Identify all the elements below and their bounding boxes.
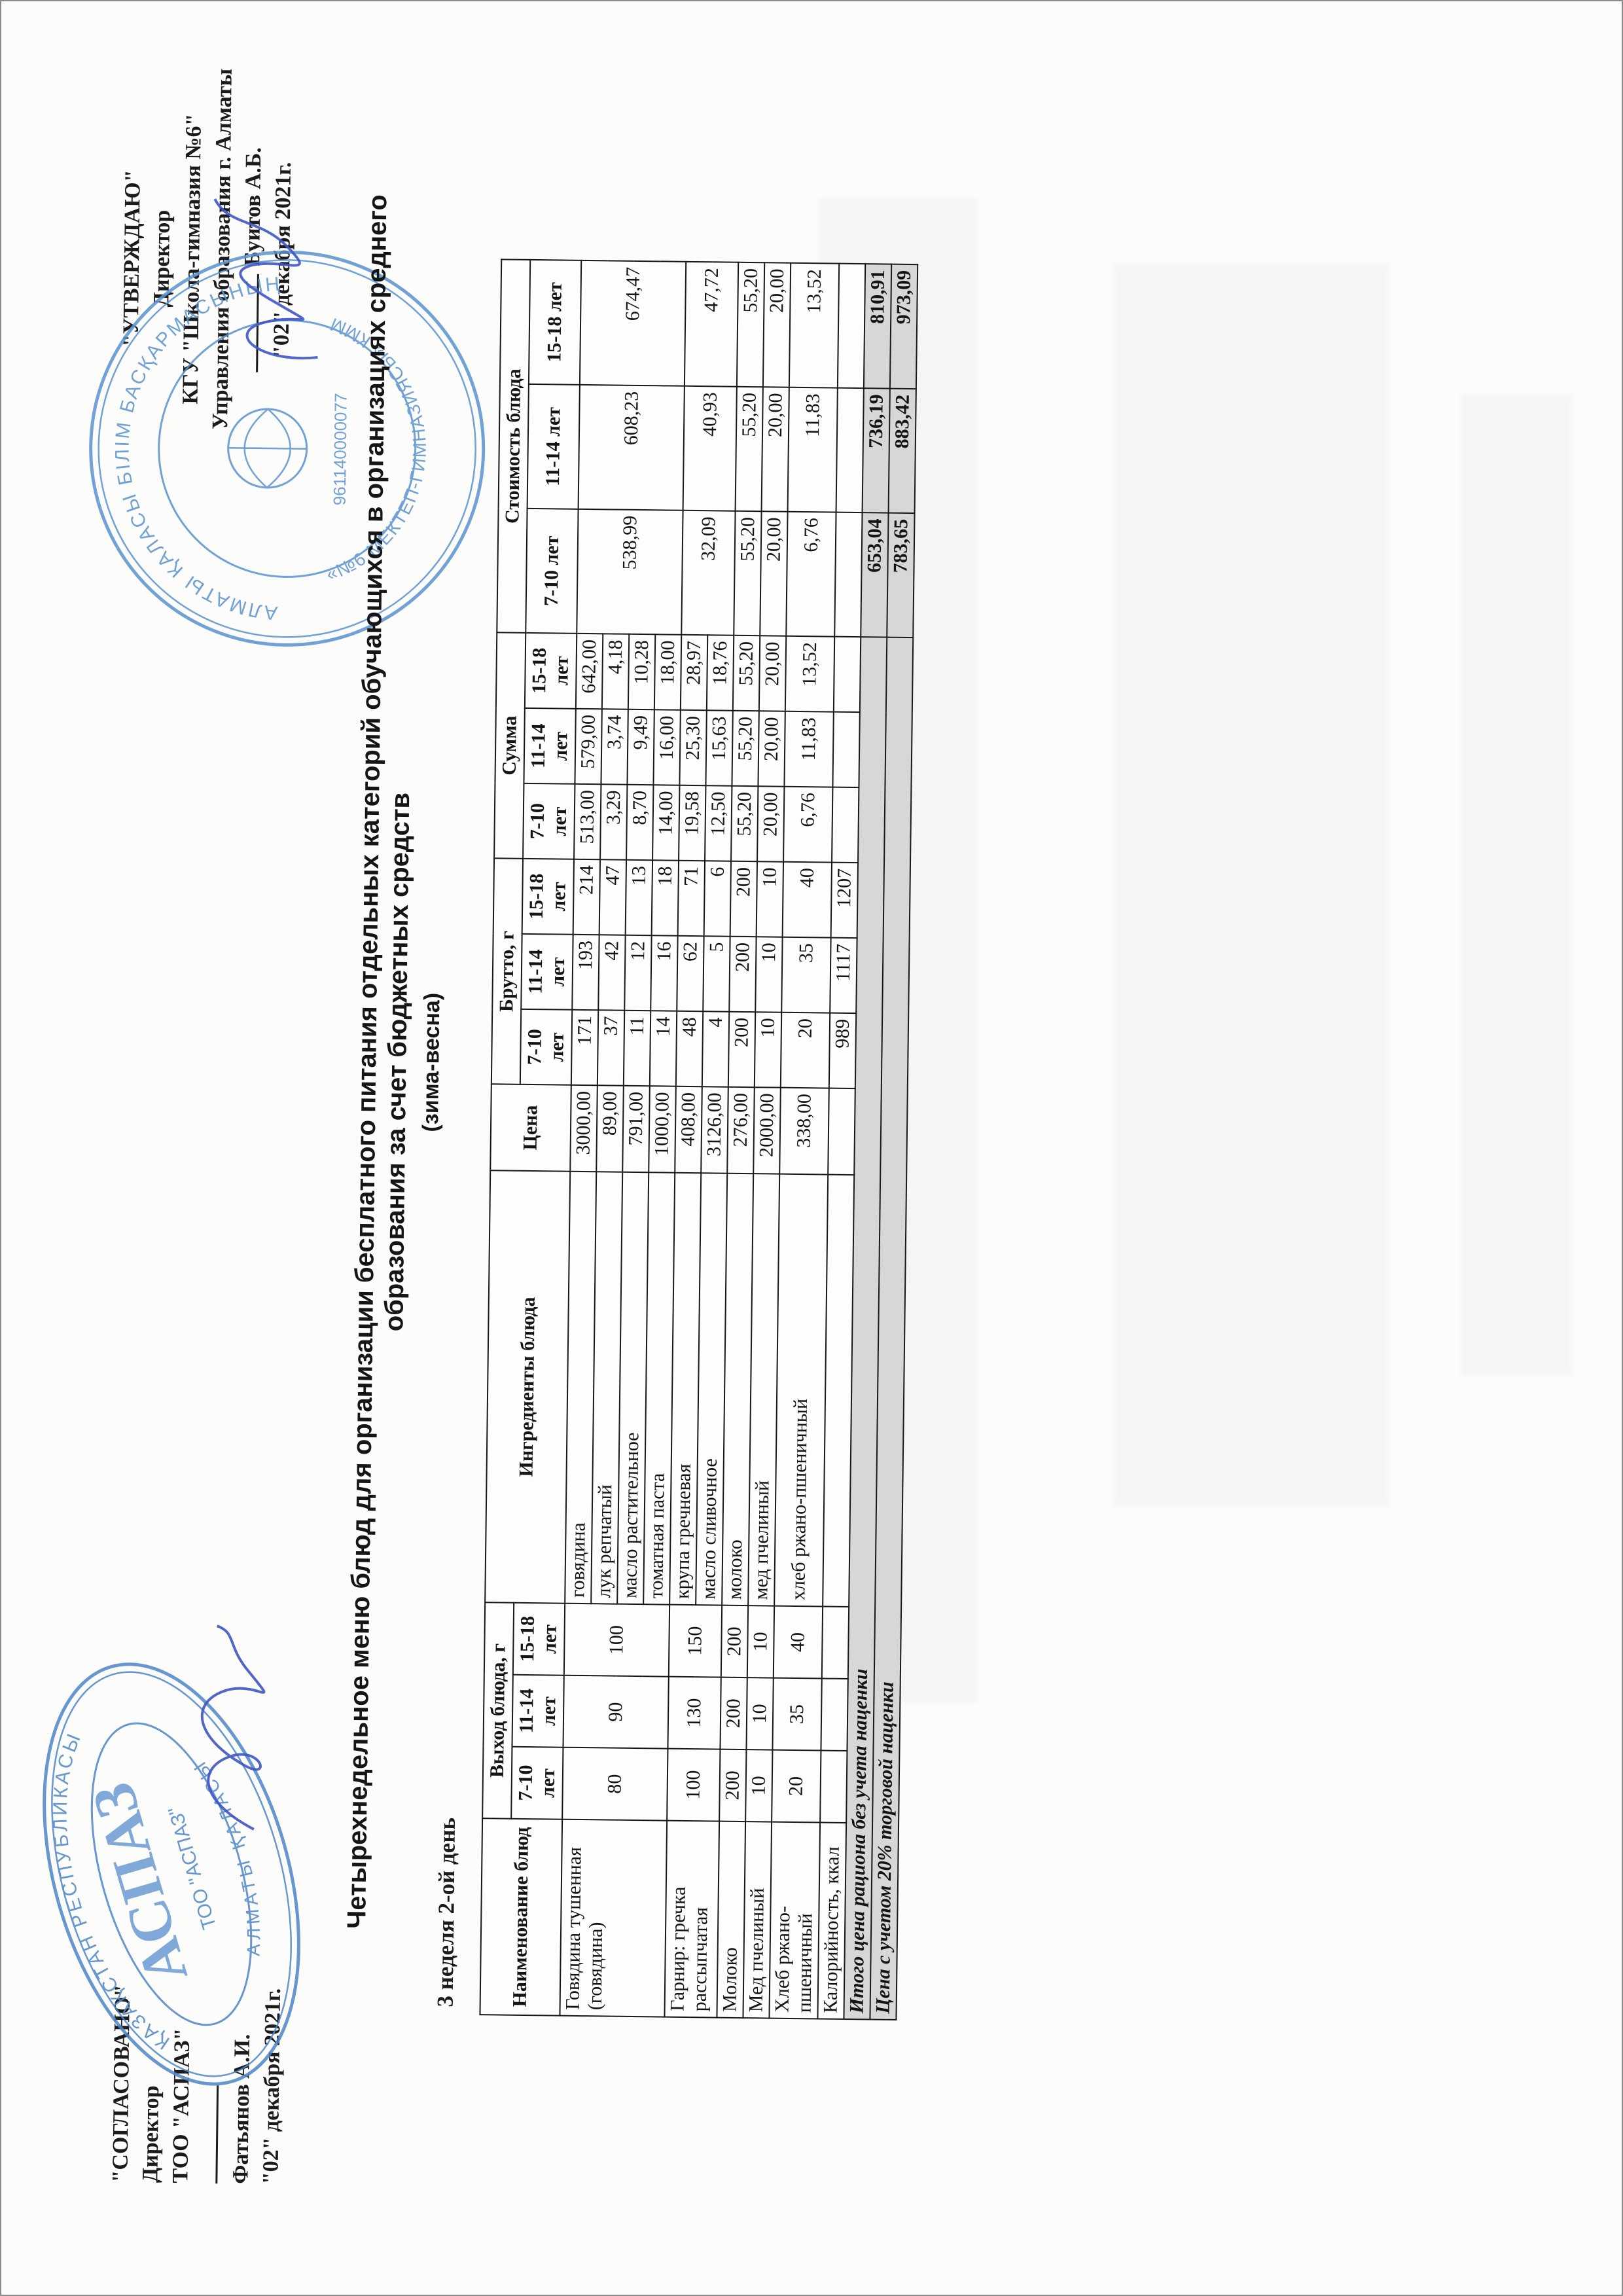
th-age: 15-18 лет	[525, 633, 577, 709]
dish-cost-cell: 674,47	[580, 260, 686, 386]
sum-cell	[834, 637, 861, 712]
signature-left-icon	[175, 1619, 296, 1842]
sum-cell: 11,83	[784, 711, 833, 787]
totals-value-cell: 653,04	[861, 512, 888, 637]
output-cell: 80	[562, 1748, 668, 1821]
gross-cell: 35	[781, 937, 830, 1013]
sum-cell: 3,29	[600, 784, 627, 859]
dish-cost-cell: 608,23	[579, 385, 685, 511]
price-cell	[828, 1088, 855, 1175]
signature-right-icon	[187, 173, 340, 384]
gross-cell: 200	[728, 1012, 755, 1087]
sum-cell: 3,74	[601, 709, 628, 784]
gross-cell: 47	[599, 859, 626, 935]
th-group: Цена	[490, 1084, 571, 1171]
sum-cell: 10,28	[628, 634, 655, 709]
output-cell: 150	[669, 1605, 722, 1677]
output-cell: 40	[774, 1606, 823, 1679]
output-cell: 100	[667, 1749, 720, 1821]
gross-cell: 16	[651, 935, 677, 1011]
gross-cell: 5	[703, 936, 730, 1011]
th-age: 11-14 лет	[521, 934, 573, 1010]
th-age: 7-10 лет	[523, 783, 575, 859]
th-group: Стоимость блюда	[497, 259, 530, 632]
output-cell: 10	[747, 1605, 774, 1677]
th-age: 11-14 лет	[524, 708, 575, 784]
th-group: Ингредиенты блюда	[485, 1170, 570, 1603]
dish-cost-cell: 47,72	[685, 262, 738, 387]
th-group: Выход блюда, г	[482, 1602, 514, 1819]
dish-cost-cell	[838, 264, 865, 388]
gross-cell: 989	[829, 1013, 856, 1088]
gross-cell: 10	[757, 861, 783, 937]
sum-cell: 14,00	[652, 785, 679, 860]
price-cell: 791,00	[622, 1086, 650, 1172]
gross-cell: 4	[702, 1011, 729, 1086]
stamp-right-center-number: 961140000077	[330, 393, 351, 505]
dish-cost-cell: 20,00	[760, 511, 787, 636]
dish-name-cell: Говядина тушенная (говядина)	[560, 1820, 667, 2017]
th-group: Сумма	[494, 632, 526, 859]
totals-value-cell: 810,91	[864, 264, 891, 388]
sum-cell	[832, 787, 859, 863]
gross-cell: 10	[755, 1012, 781, 1087]
gross-cell: 214	[573, 859, 600, 935]
sum-cell: 18,76	[707, 635, 734, 710]
gross-cell: 48	[676, 1011, 703, 1086]
gross-cell: 42	[598, 935, 625, 1010]
gross-cell: 40	[783, 862, 832, 938]
th-age: 7-10 лет	[520, 1009, 572, 1085]
gross-cell: 10	[755, 937, 782, 1012]
th-age: 11-14 лет	[512, 1675, 563, 1748]
menu-table: Наименование блюдВыход блюда, гИнгредиен…	[479, 259, 918, 2020]
totals-value-cell: 783,65	[887, 513, 914, 637]
sum-cell: 642,00	[576, 634, 603, 709]
sum-cell: 20,00	[757, 786, 784, 861]
sum-cell: 9,49	[627, 709, 654, 785]
price-cell: 276,00	[727, 1087, 755, 1174]
output-cell: 200	[721, 1605, 748, 1677]
output-cell: 200	[719, 1749, 746, 1821]
price-cell: 338,00	[779, 1088, 829, 1175]
th-group: Наименование блюд	[480, 1818, 562, 2015]
sum-cell: 25,30	[679, 710, 706, 785]
sum-cell: 55,20	[732, 711, 758, 786]
output-cell: 130	[668, 1677, 721, 1749]
dish-cost-cell: 538,99	[577, 509, 683, 635]
th-age: 7-10 лет	[526, 509, 578, 634]
sum-cell: 16,00	[653, 709, 680, 785]
output-cell: 35	[772, 1678, 821, 1751]
sum-cell: 19,58	[679, 785, 705, 861]
week-day-subtitle: 3 неделя 2-ой день	[433, 1818, 461, 2007]
sum-cell: 6,76	[783, 787, 832, 863]
dish-cost-cell: 13,52	[789, 263, 839, 388]
th-age: 11-14 лет	[527, 384, 580, 509]
dish-cost-cell: 11,83	[788, 387, 838, 512]
totals-value-cell: 736,19	[863, 388, 890, 512]
output-cell: 10	[746, 1677, 773, 1749]
dish-cost-cell	[836, 388, 864, 512]
sum-cell: 20,00	[758, 711, 785, 786]
gross-cell: 12	[624, 935, 651, 1011]
gross-cell: 1207	[831, 863, 858, 938]
scanned-menu-page: "СОГЛАСОВАНО" Директор ТОО "АСПАЗ" Фатья…	[0, 0, 1623, 2296]
output-cell: 200	[720, 1677, 747, 1749]
output-cell: 10	[745, 1749, 772, 1821]
dish-cost-cell: 55,20	[736, 387, 763, 511]
output-cell	[821, 1679, 847, 1751]
sum-cell: 20,00	[759, 636, 786, 711]
sum-cell: 55,20	[731, 786, 758, 861]
ingredient-cell: хлеб ржано-пшеничный	[774, 1174, 828, 1607]
dish-name-cell: Хлеб ржано-пшеничный	[769, 1822, 820, 2019]
dish-cost-cell: 32,09	[681, 511, 735, 636]
output-cell	[822, 1607, 849, 1679]
output-cell: 100	[564, 1604, 669, 1677]
dish-name-cell: Гарнир: гречка рассыпчатая	[664, 1821, 719, 2018]
price-cell: 1000,00	[649, 1086, 676, 1172]
output-cell: 90	[563, 1676, 668, 1749]
sum-cell: 4,18	[602, 634, 629, 709]
output-cell	[820, 1751, 847, 1823]
totals-value-cell: 883,42	[889, 389, 916, 513]
dish-cost-cell: 6,76	[786, 512, 836, 637]
th-age: 7-10 лет	[511, 1747, 563, 1820]
dish-name-cell: Мед пчелиный	[743, 1821, 772, 2018]
price-cell: 2000,00	[753, 1087, 781, 1174]
rotated-document-stage: "СОГЛАСОВАНО" Директор ТОО "АСПАЗ" Фатья…	[0, 1, 1623, 2296]
th-age: 15-18 лет	[513, 1603, 565, 1676]
dish-cost-cell	[834, 512, 862, 637]
sum-cell: 513,00	[574, 784, 601, 859]
sum-cell: 12,50	[705, 785, 732, 861]
gross-cell: 171	[571, 1010, 598, 1085]
price-cell: 3126,00	[701, 1086, 728, 1173]
dish-name-cell: Калорийность, ккал	[817, 1822, 846, 2018]
sum-cell: 8,70	[626, 785, 653, 860]
sum-cell: 13,52	[785, 636, 834, 712]
gross-cell: 200	[729, 937, 756, 1012]
sum-cell	[832, 712, 859, 787]
gross-cell: 1117	[830, 938, 857, 1013]
gross-cell: 18	[652, 860, 679, 935]
gross-cell: 14	[650, 1011, 677, 1086]
menu-table-body: Говядина тушенная (говядина)8090100говяд…	[560, 260, 918, 2020]
gross-cell: 13	[626, 860, 652, 935]
th-group: Брутто, г	[491, 858, 523, 1085]
sum-cell: 18,00	[654, 634, 681, 709]
sum-cell: 15,63	[705, 710, 732, 785]
sum-cell: 55,20	[733, 636, 760, 711]
gross-cell: 62	[677, 936, 704, 1011]
gross-cell: 71	[678, 861, 705, 936]
price-cell: 89,00	[596, 1085, 624, 1172]
th-age: 15-18 лет	[522, 859, 574, 935]
output-cell: 20	[772, 1750, 821, 1823]
gross-cell: 37	[597, 1010, 624, 1085]
gross-cell: 200	[730, 861, 757, 937]
price-cell: 3000,00	[570, 1085, 597, 1172]
sum-cell: 579,00	[575, 709, 601, 784]
sum-cell: 28,97	[681, 635, 707, 710]
dish-name-cell: Молоко	[717, 1821, 745, 2018]
gross-cell: 11	[624, 1011, 651, 1086]
price-cell: 408,00	[675, 1086, 702, 1173]
dish-cost-cell: 55,20	[734, 511, 761, 636]
totals-value-cell: 973,09	[890, 264, 918, 389]
dish-cost-cell: 20,00	[762, 387, 789, 511]
gross-cell: 193	[572, 935, 599, 1010]
th-age: 15-18 лет	[529, 260, 581, 385]
dish-cost-cell: 55,20	[737, 262, 764, 387]
dish-cost-cell: 40,93	[683, 386, 737, 511]
gross-cell: 6	[704, 861, 731, 936]
dish-cost-cell: 20,00	[763, 262, 791, 387]
gross-cell: 20	[781, 1013, 830, 1088]
